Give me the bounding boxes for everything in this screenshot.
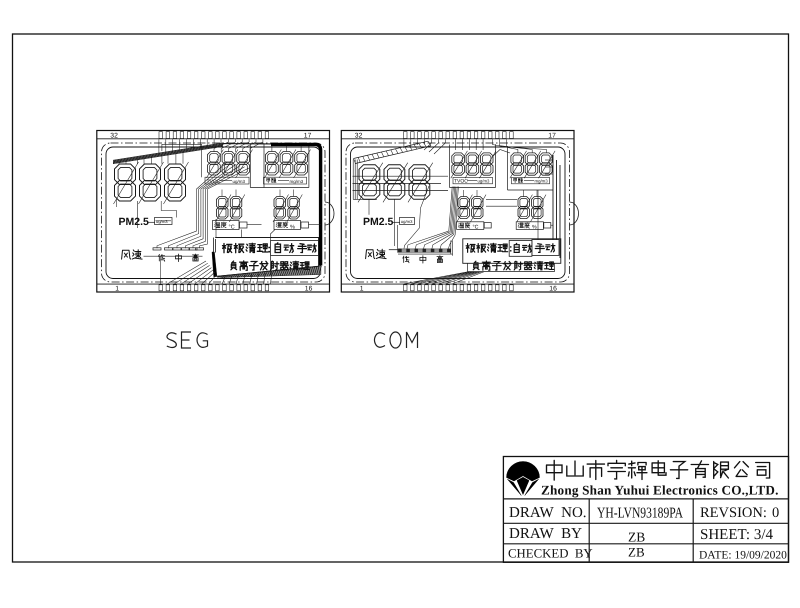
svg-text:ZB: ZB [628,530,645,545]
svg-text:32: 32 [355,133,363,140]
svg-text:YH-LVN93189PA: YH-LVN93189PA [597,506,683,522]
svg-text:PM2.5: PM2.5 [119,216,150,228]
svg-text:%: % [290,224,295,230]
svg-text:mg/m3: mg/m3 [290,179,304,184]
svg-text:1: 1 [115,285,119,292]
svg-text:ug/m3: ug/m3 [401,219,413,224]
svg-text:17: 17 [304,133,312,140]
svg-text:mg/m3: mg/m3 [535,179,549,184]
svg-text:ug/m3: ug/m3 [478,179,491,184]
svg-text:ug/m3: ug/m3 [156,219,168,224]
svg-text:DRAW BY: DRAW BY [509,526,582,542]
svg-text:17: 17 [548,133,556,140]
svg-text:32: 32 [110,133,118,140]
svg-text:PM2.5: PM2.5 [363,216,394,228]
svg-text:1: 1 [360,285,364,292]
svg-text:16: 16 [305,285,313,292]
svg-text:%: % [532,224,537,230]
svg-text::: : [267,243,271,255]
svg-text::: : [509,243,513,255]
svg-text:ZB: ZB [628,545,645,560]
svg-text:DATE: 19/09/2020: DATE: 19/09/2020 [699,550,787,562]
svg-text:ug/m3: ug/m3 [233,179,246,184]
svg-text:TVOC: TVOC [454,179,468,185]
svg-text:Zhong Shan Yuhui Electronics C: Zhong Shan Yuhui Electronics CO.,LTD. [541,483,779,498]
svg-text:CHECKED BY: CHECKED BY [508,547,593,561]
svg-text:°C: °C [473,224,479,230]
svg-text:16: 16 [549,285,557,292]
svg-text:°C: °C [229,224,235,230]
svg-text:SHEET: 3/4: SHEET: 3/4 [700,527,774,543]
svg-text:REVSION:: REVSION: [700,505,767,521]
svg-text:0: 0 [772,505,779,521]
svg-text:DRAW NO.: DRAW NO. [509,505,587,521]
